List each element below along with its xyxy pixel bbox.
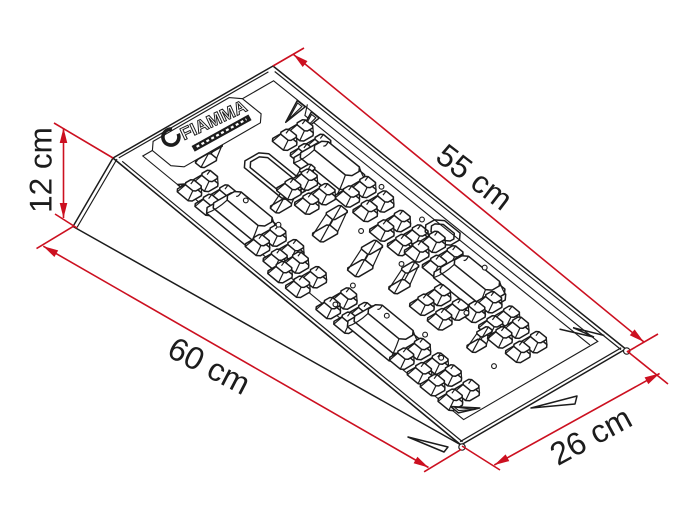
svg-text:12 cm: 12 cm: [22, 127, 58, 213]
